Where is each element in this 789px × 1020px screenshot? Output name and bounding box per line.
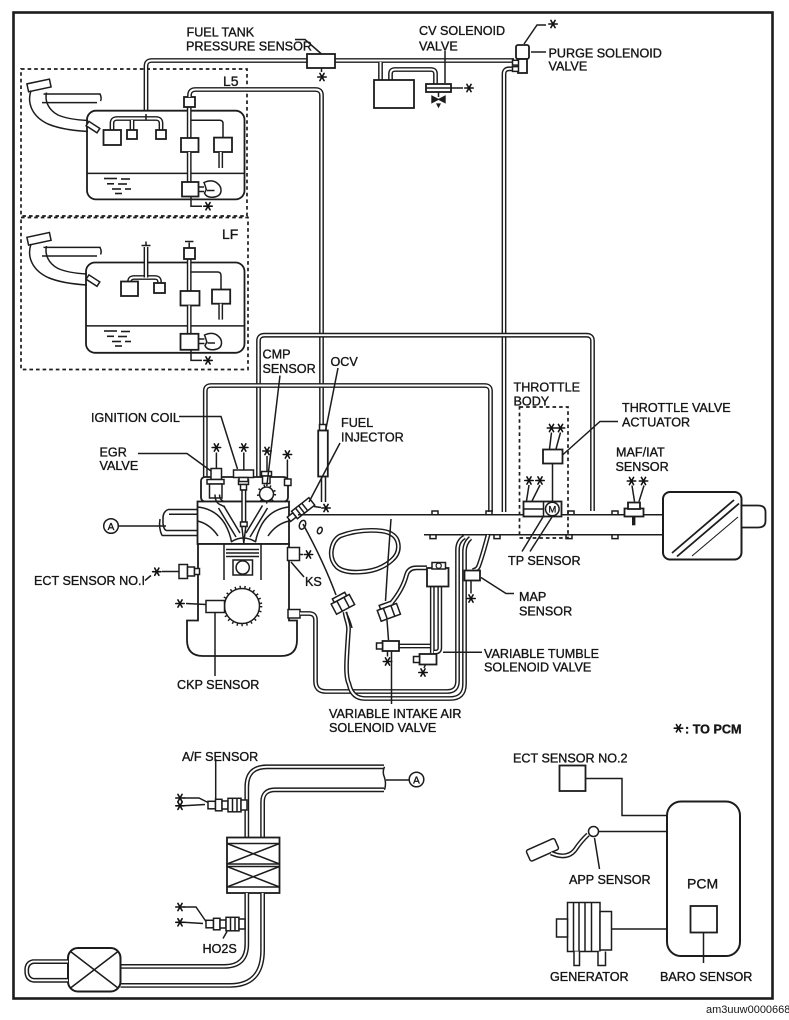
svg-text:L5: L5 bbox=[223, 73, 239, 89]
svg-text:BODY: BODY bbox=[514, 395, 550, 409]
svg-text:APP SENSOR: APP SENSOR bbox=[569, 873, 651, 887]
svg-text:FUEL TANK: FUEL TANK bbox=[187, 26, 255, 40]
svg-text:VALVE: VALVE bbox=[549, 60, 588, 74]
svg-text:PURGE SOLENOID: PURGE SOLENOID bbox=[549, 47, 662, 61]
svg-text:GENERATOR: GENERATOR bbox=[550, 970, 629, 984]
svg-text:VALVE: VALVE bbox=[419, 40, 458, 54]
svg-text:HO2S: HO2S bbox=[203, 942, 237, 956]
svg-text:VARIABLE INTAKE AIR: VARIABLE INTAKE AIR bbox=[329, 707, 462, 721]
svg-text:M: M bbox=[548, 505, 556, 516]
svg-text:SENSOR: SENSOR bbox=[263, 362, 316, 376]
svg-text:IGNITION COIL: IGNITION COIL bbox=[91, 411, 180, 425]
svg-text:OCV: OCV bbox=[331, 355, 359, 369]
svg-text:VALVE: VALVE bbox=[100, 459, 139, 473]
svg-text:KS: KS bbox=[305, 575, 322, 589]
svg-text:PCM: PCM bbox=[687, 876, 718, 892]
svg-text:SENSOR: SENSOR bbox=[616, 460, 669, 474]
svg-text:PRESSURE SENSOR: PRESSURE SENSOR bbox=[186, 40, 312, 54]
svg-text:am3uuw0000668: am3uuw0000668 bbox=[706, 1004, 789, 1016]
svg-text:BARO SENSOR: BARO SENSOR bbox=[660, 970, 752, 984]
svg-text:LF: LF bbox=[222, 226, 238, 242]
svg-text:CKP SENSOR: CKP SENSOR bbox=[177, 678, 259, 692]
svg-text:TP SENSOR: TP SENSOR bbox=[508, 554, 581, 568]
svg-text:ECT SENSOR NO.2: ECT SENSOR NO.2 bbox=[513, 752, 628, 766]
svg-text:INJECTOR: INJECTOR bbox=[341, 431, 404, 445]
svg-text:A: A bbox=[413, 776, 420, 787]
svg-text:ACTUATOR: ACTUATOR bbox=[622, 416, 690, 430]
svg-text:A/F SENSOR: A/F SENSOR bbox=[182, 750, 258, 764]
svg-text:VARIABLE TUMBLE: VARIABLE TUMBLE bbox=[484, 647, 599, 661]
svg-text:MAF/IAT: MAF/IAT bbox=[616, 446, 665, 460]
svg-text:ECT SENSOR NO.I: ECT SENSOR NO.I bbox=[34, 574, 145, 588]
svg-text:EGR: EGR bbox=[100, 446, 127, 460]
svg-text:CMP: CMP bbox=[263, 348, 291, 362]
svg-text:THROTTLE: THROTTLE bbox=[514, 381, 580, 395]
svg-text:SENSOR: SENSOR bbox=[519, 605, 572, 619]
svg-text:THROTTLE VALVE: THROTTLE VALVE bbox=[622, 401, 731, 415]
svg-text:: TO PCM: : TO PCM bbox=[685, 723, 741, 737]
svg-text:MAP: MAP bbox=[519, 590, 546, 604]
svg-text:FUEL: FUEL bbox=[341, 416, 373, 430]
svg-text:SOLENOID VALVE: SOLENOID VALVE bbox=[484, 661, 591, 675]
svg-text:A: A bbox=[108, 522, 115, 533]
svg-text:SOLENOID VALVE: SOLENOID VALVE bbox=[329, 721, 436, 735]
svg-text:CV SOLENOID: CV SOLENOID bbox=[419, 24, 505, 38]
